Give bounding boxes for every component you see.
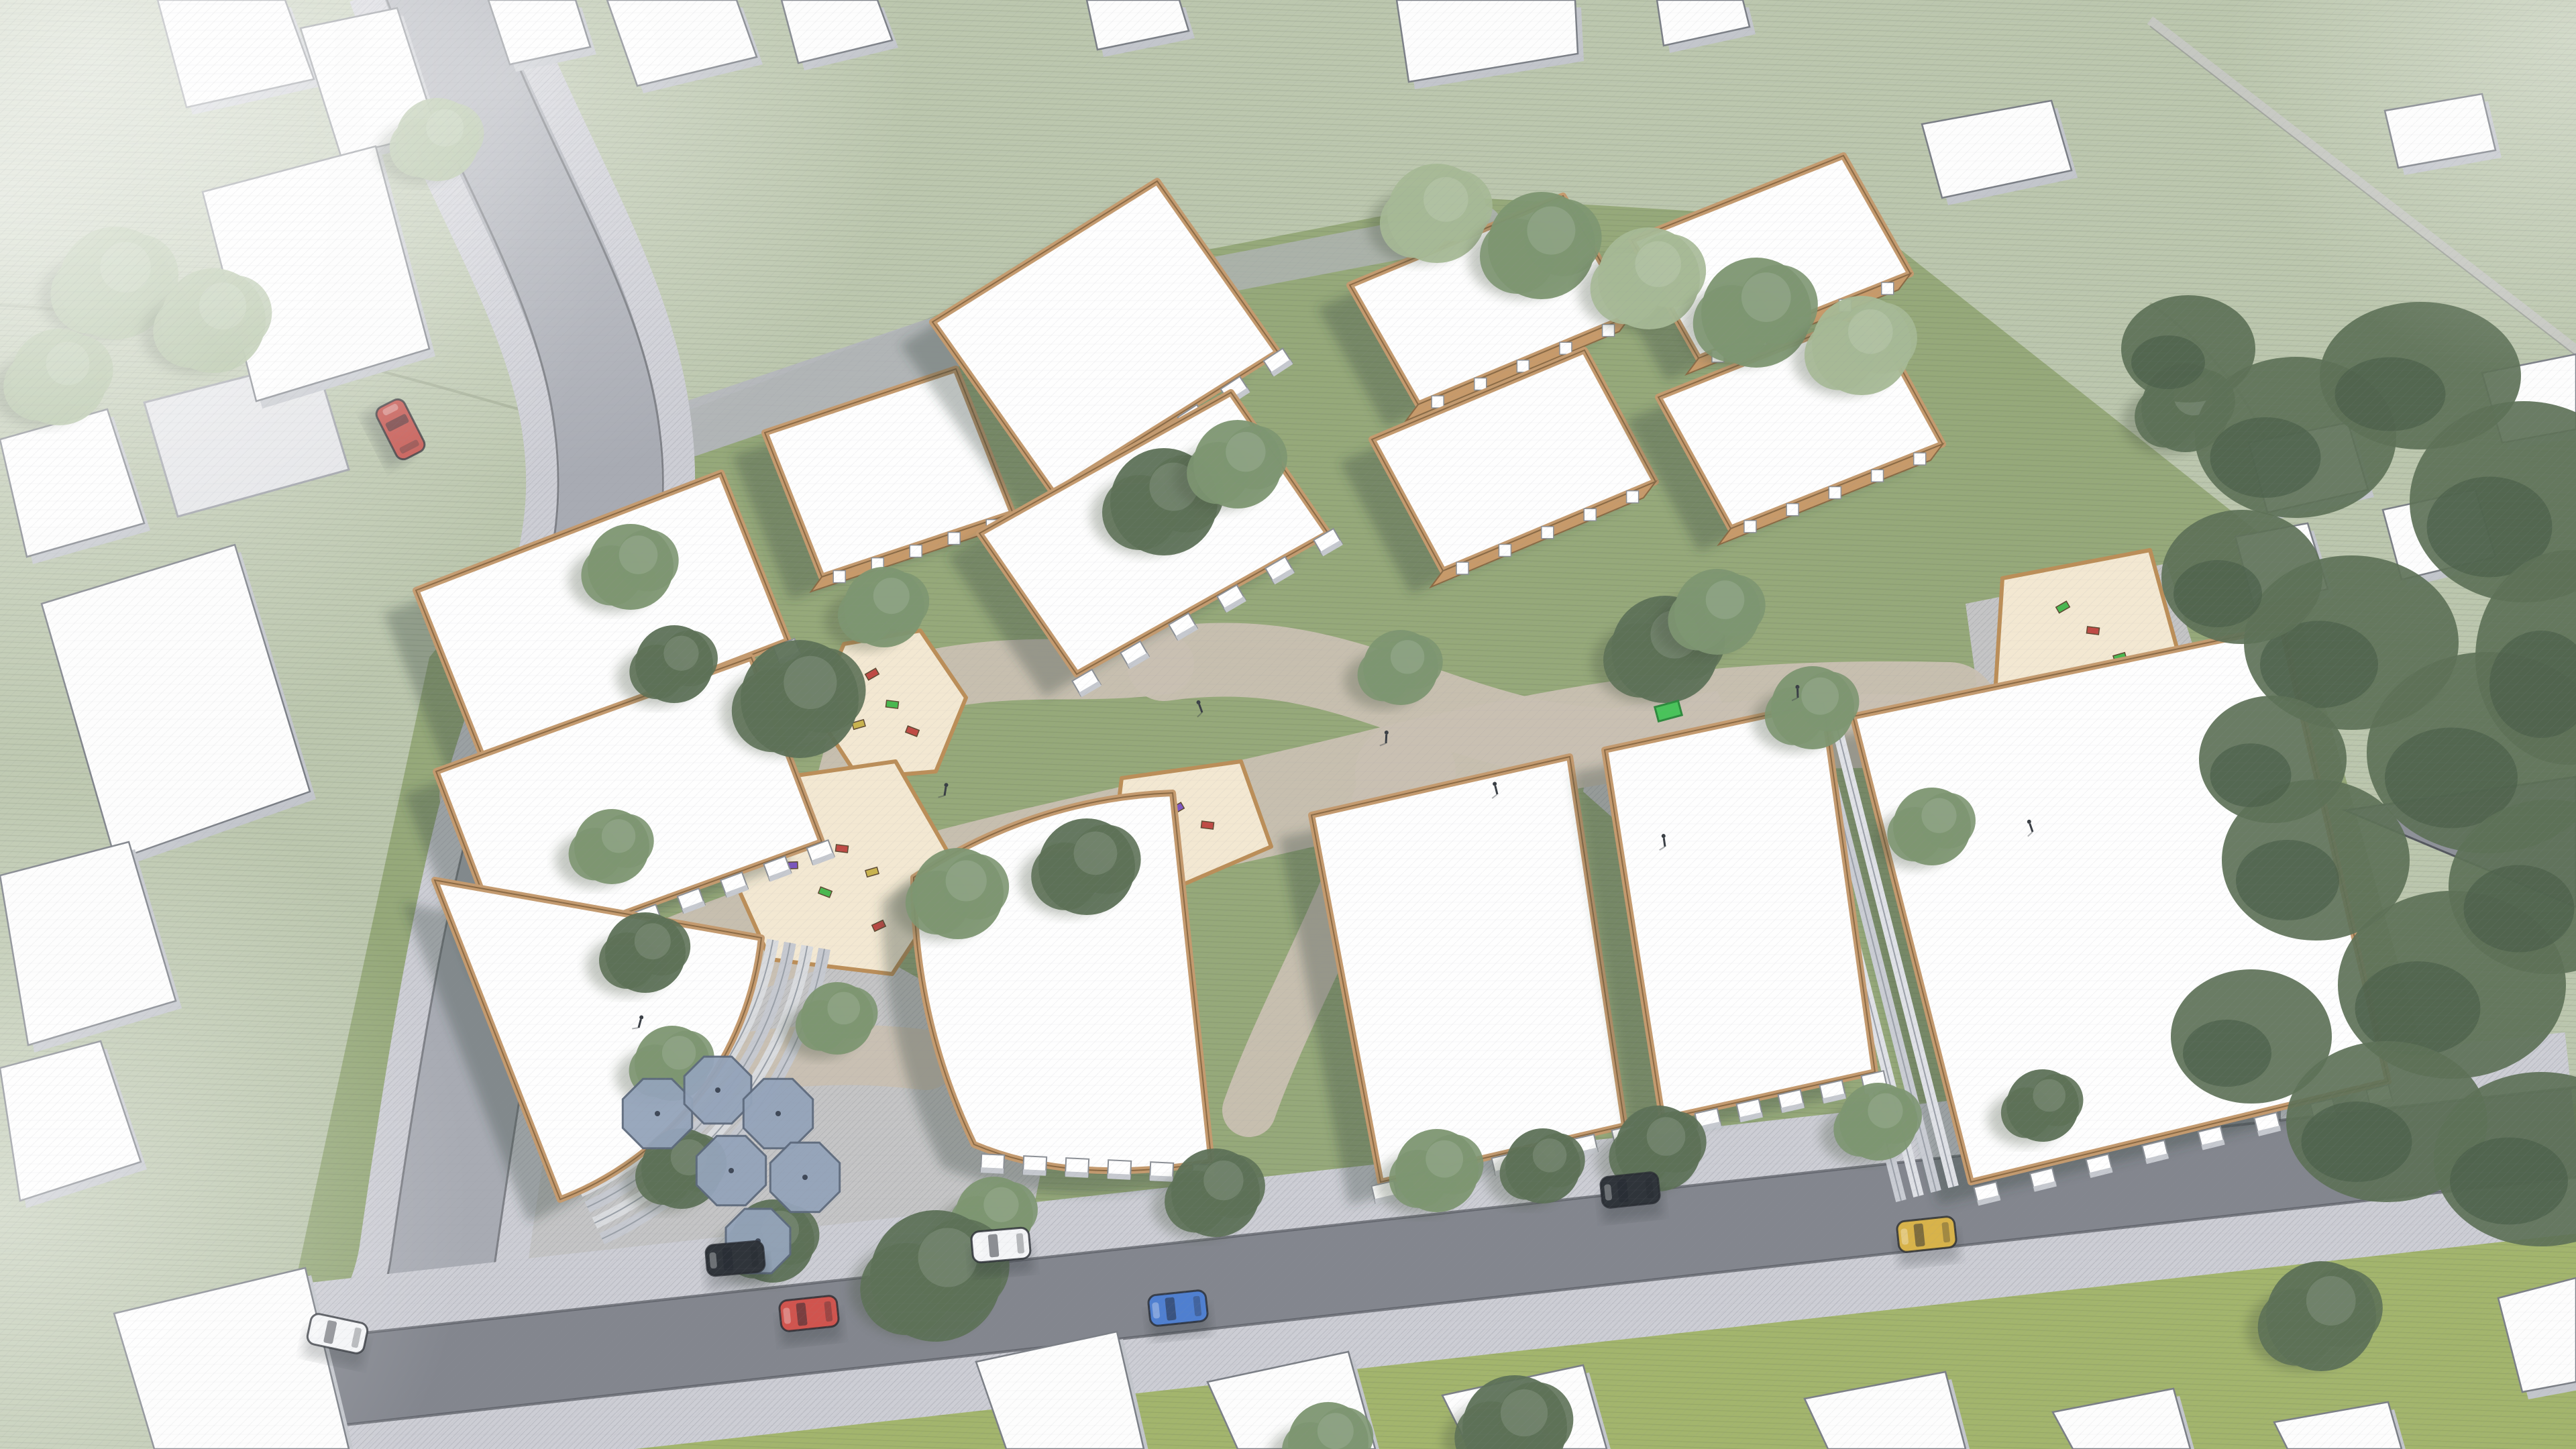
site-plan-rendering: Aerial perspective pencil-and-wash archi… xyxy=(0,0,2576,1449)
paper-texture xyxy=(0,0,2576,1449)
texture-overlay xyxy=(0,0,2576,1449)
aerial-masterplan-sketch: Aerial perspective pencil-and-wash archi… xyxy=(0,0,2576,1449)
